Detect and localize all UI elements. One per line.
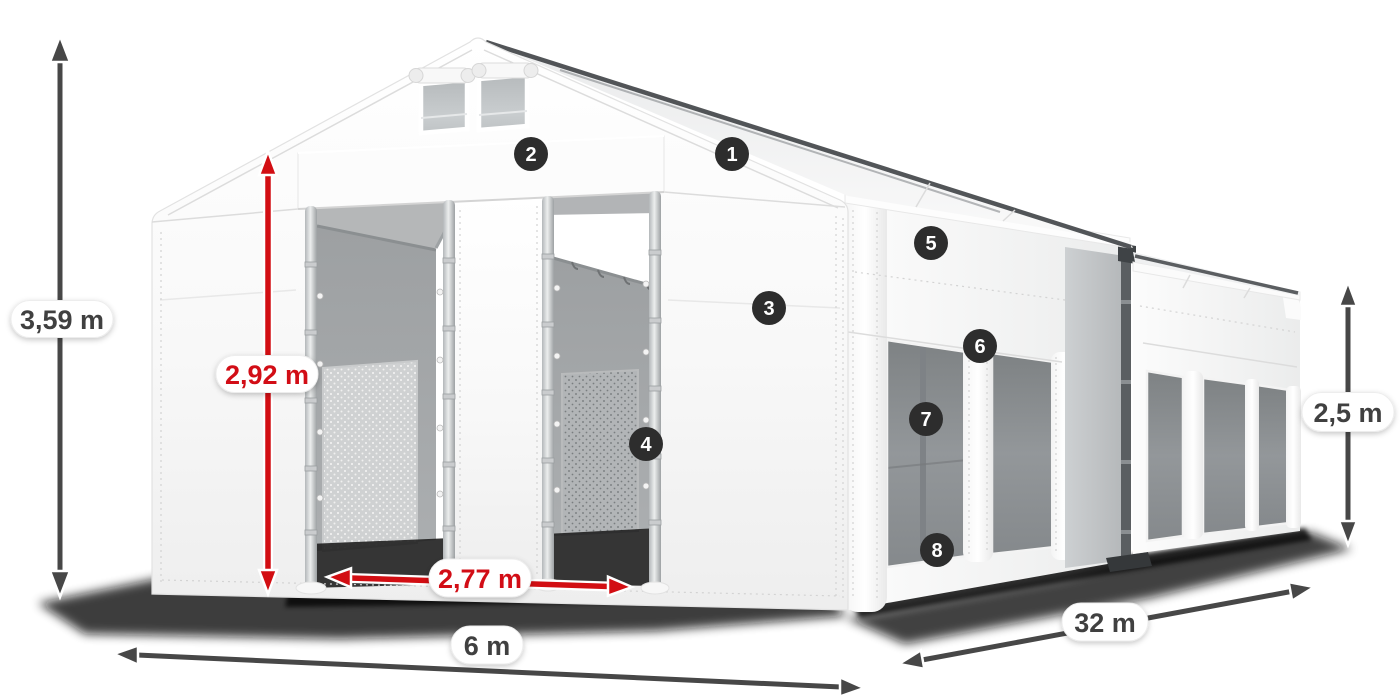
feature-marker-6-number: 6 <box>974 336 985 358</box>
dimension-side-height: 2,5 m <box>1302 282 1394 545</box>
mesh-window <box>562 370 638 535</box>
interior-pole <box>920 346 926 559</box>
feature-marker-6[interactable]: 6 <box>963 329 997 363</box>
entrance-height-label: 2,92 m <box>216 356 318 393</box>
entrance-width-value: 2,77 m <box>438 564 522 594</box>
tent-length-label: 32 m <box>1062 603 1148 641</box>
entrance-height-value: 2,92 m <box>225 360 309 390</box>
central-mullion <box>452 196 545 587</box>
gable-window-right <box>472 63 538 130</box>
tent-width-value: 6 m <box>464 631 511 661</box>
feature-marker-8-number: 8 <box>931 540 942 562</box>
side-post <box>1245 379 1259 531</box>
feature-marker-4-number: 4 <box>640 434 652 456</box>
feature-marker-2[interactable]: 2 <box>514 137 548 171</box>
side-height-label: 2,5 m <box>1302 393 1394 432</box>
side-bay-window-3 <box>1147 371 1183 541</box>
left-doorway <box>308 200 452 588</box>
side-post <box>1183 371 1203 539</box>
tent-width-label: 6 m <box>451 626 523 664</box>
tent-illustration <box>152 38 1301 612</box>
right-doorway <box>545 191 660 586</box>
diagram-canvas: 3,59 m 2,92 m 2, <box>0 0 1400 700</box>
feature-marker-1-number: 1 <box>726 144 737 166</box>
side-bay-window-5 <box>1257 385 1290 527</box>
side-wall-back-module <box>1133 265 1301 554</box>
interior-floor-shadow <box>545 528 660 586</box>
feature-marker-2-number: 2 <box>525 144 536 166</box>
gable-window-left <box>409 68 475 133</box>
tent-length-value: 32 m <box>1074 608 1136 638</box>
total-height-label: 3,59 m <box>11 301 113 338</box>
corner-post-back <box>1286 386 1301 528</box>
side-bay-window-4 <box>1203 378 1247 534</box>
feature-marker-3[interactable]: 3 <box>752 291 786 325</box>
side-height-value: 2,5 m <box>1313 398 1382 428</box>
feature-marker-7[interactable]: 7 <box>909 402 943 436</box>
feature-marker-3-number: 3 <box>763 298 774 320</box>
dimension-total-height: 3,59 m <box>11 36 113 597</box>
feature-marker-1[interactable]: 1 <box>715 137 749 171</box>
sliding-door-pole <box>1121 251 1131 563</box>
entrance-width-label: 2,77 m <box>429 559 531 597</box>
feature-marker-4[interactable]: 4 <box>629 427 663 461</box>
tent-dimension-diagram: 3,59 m 2,92 m 2, <box>0 0 1400 700</box>
feature-marker-8[interactable]: 8 <box>920 533 954 567</box>
side-bay-window-1 <box>887 340 967 567</box>
mesh-window <box>323 361 417 551</box>
side-bay-window-2 <box>992 353 1055 554</box>
corner-post-front-right <box>843 194 887 612</box>
feature-marker-5-number: 5 <box>925 233 936 255</box>
feature-marker-7-number: 7 <box>920 409 931 431</box>
total-height-value: 3,59 m <box>20 305 104 335</box>
feature-marker-5[interactable]: 5 <box>914 226 948 260</box>
side-wall-front-module <box>843 194 1152 612</box>
side-post <box>963 342 993 562</box>
